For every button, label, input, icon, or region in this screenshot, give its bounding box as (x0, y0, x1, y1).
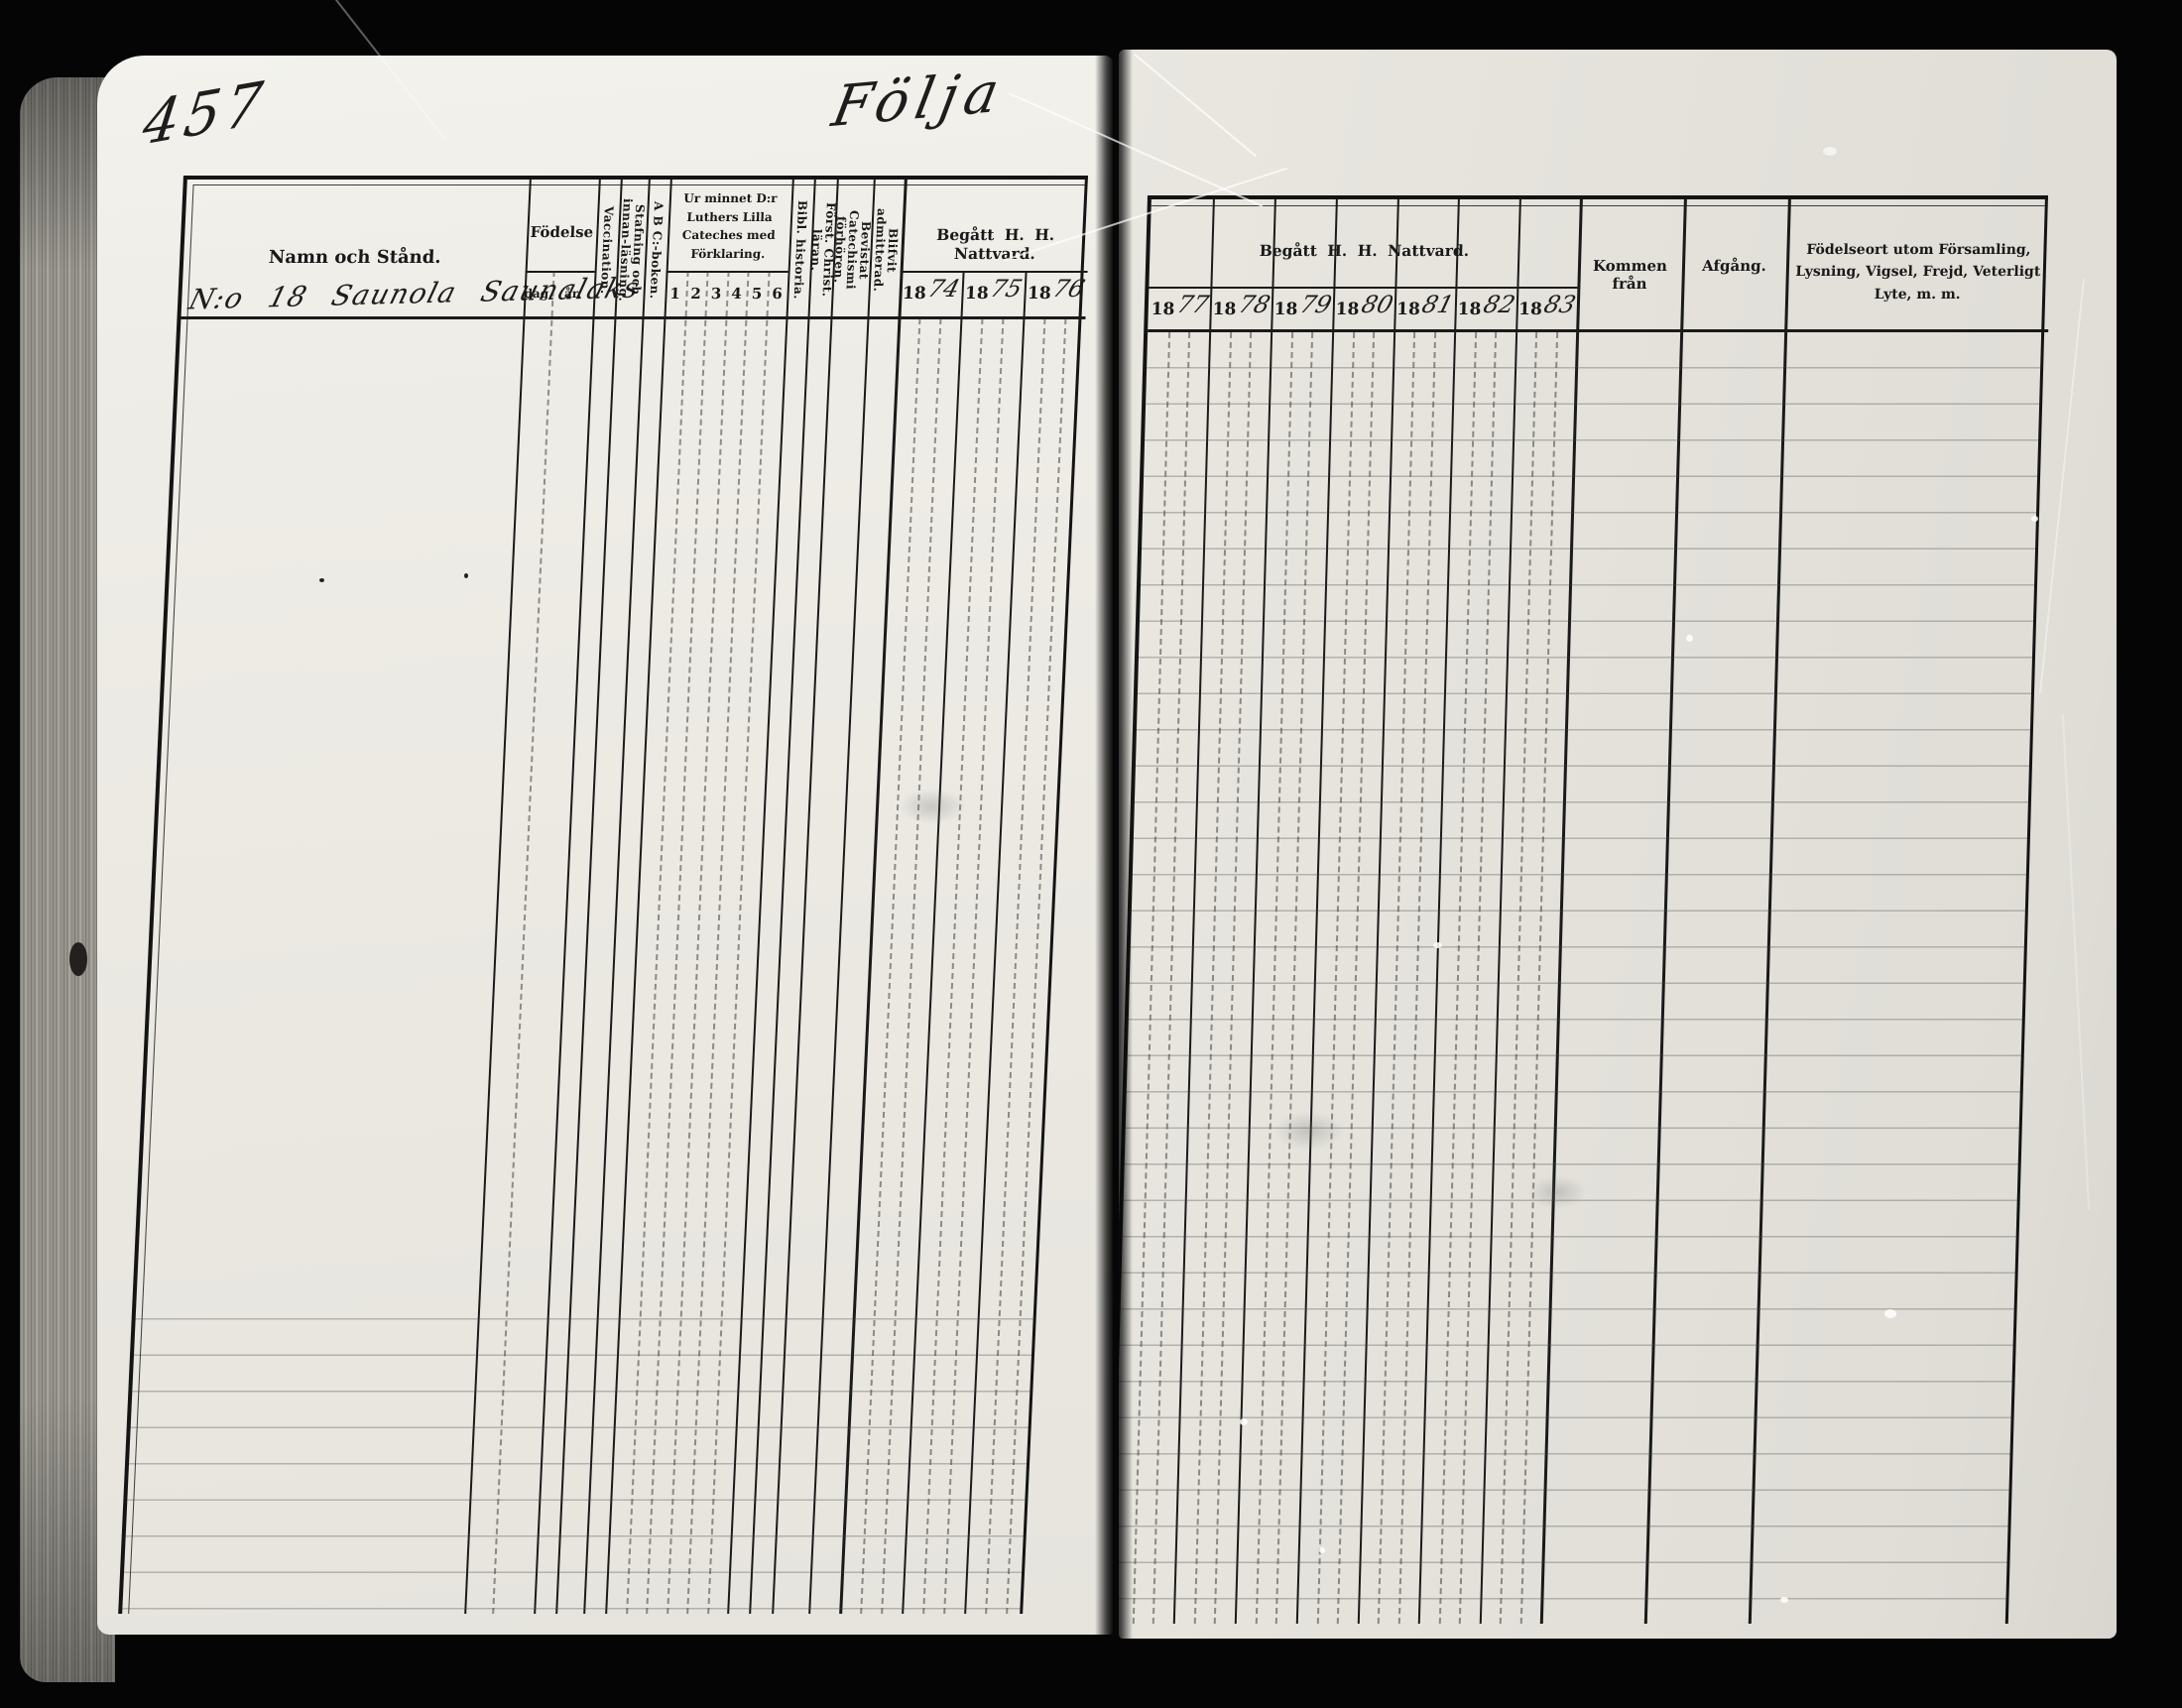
year-printed: 18 (1335, 300, 1359, 319)
right-table: Begått H. H. Nattvard. 1877 1878 1879 18… (1119, 195, 2048, 1624)
catechism-col-5: 5 (746, 285, 768, 303)
left-table: Namn och Stånd. N:o 18 Saunola Saunalaks… (118, 176, 1088, 1614)
left-page: 457 Följa Namn och Stånd. N:o 18 Saunola… (97, 56, 1113, 1635)
paper-speck (1319, 1547, 1325, 1553)
col-header-communion-right: Begått H. H. Nattvard. (1150, 241, 1579, 260)
abc-book-label: A B C:-boken. (648, 201, 665, 300)
year-handwritten: 75 (987, 275, 1025, 303)
year-handwritten: 81 (1419, 291, 1457, 318)
ink-dot (464, 573, 468, 578)
year-column-1880: 1880 (1332, 293, 1394, 320)
col-header-communion-left: Begått H. H. Nattvard. (901, 225, 1090, 263)
catechism-col-3: 3 (705, 285, 727, 303)
ink-blot (69, 942, 87, 976)
year-column-1879: 1879 (1271, 293, 1333, 320)
paper-speck (1686, 635, 1693, 642)
year-column-1883: 1883 (1515, 293, 1577, 320)
paper-speck (1780, 1597, 1788, 1603)
bible-history-label: Bibl. historia. (791, 200, 808, 300)
year-printed: 18 (965, 284, 990, 304)
year-printed: 18 (1396, 300, 1420, 319)
year-printed: 18 (1028, 284, 1052, 304)
year-handwritten: 82 (1480, 291, 1517, 318)
header-bottom-rule (181, 316, 1085, 319)
year-handwritten: 79 (1296, 291, 1334, 318)
year-column-1876: 1876 (1024, 277, 1087, 305)
year-printed: 18 (1212, 300, 1236, 319)
year-printed: 18 (1457, 300, 1481, 319)
ruled-lines (1119, 332, 2041, 1624)
year-handwritten: 77 (1173, 291, 1211, 318)
catechism-col-1: 1 (665, 285, 685, 303)
col-header-name-status: Namn och Stånd. (183, 247, 527, 268)
admitted-label: Blifvit admitterad. (871, 185, 902, 314)
book-gutter-shadow (1095, 50, 1133, 1641)
paper-speck (1823, 147, 1837, 156)
header-rule (1149, 287, 1577, 289)
ruled-lines (122, 1283, 1034, 1614)
col-header-birthplace-notes: Födelseort utom Församling, Lysning, Vig… (1791, 239, 2045, 305)
year-handwritten: 76 (1049, 275, 1087, 303)
catechism-col-6: 6 (767, 285, 788, 303)
year-printed: 18 (1518, 300, 1542, 319)
paper-speck (2031, 516, 2038, 522)
vaccination-label: Vaccination. (598, 206, 615, 295)
col-header-catechism-memory: Ur minnet D:r Luthers Lilla Cateches med… (668, 189, 789, 263)
catechism-col-4: 4 (726, 285, 747, 303)
catechism-col-2: 2 (685, 285, 706, 303)
year-printed: 18 (1151, 300, 1174, 319)
year-column-1881: 1881 (1394, 293, 1455, 320)
col-header-birth-year: år. (551, 287, 594, 301)
year-handwritten: 78 (1235, 291, 1273, 318)
smudge-mark (898, 789, 967, 824)
header-rule (526, 271, 595, 273)
col-header-departure: Afgång. (1682, 257, 1787, 275)
year-handwritten: 74 (924, 275, 962, 303)
paper-speck (1433, 942, 1442, 948)
handwritten-page-title: Följa (827, 60, 1011, 140)
paper-speck (1240, 1418, 1248, 1425)
year-column-1882: 1882 (1454, 293, 1516, 320)
header-rule (901, 271, 1088, 273)
smudge-mark (1274, 1111, 1344, 1151)
handwritten-page-number: 457 (139, 67, 272, 160)
col-header-came-from: Kommen från (1577, 257, 1682, 293)
col-header-birth: Födelse (527, 223, 597, 241)
year-handwritten: 83 (1541, 291, 1579, 318)
paper-speck (1884, 1309, 1896, 1318)
col-header-birth-day: dag. (524, 287, 552, 301)
smudge-mark (1527, 1175, 1587, 1209)
inner-border-line (1152, 205, 2045, 206)
ink-dot (319, 578, 324, 582)
year-printed: 18 (903, 284, 927, 304)
year-column-1877: 1877 (1148, 293, 1210, 320)
year-column-1874: 1874 (899, 277, 962, 305)
year-column-1875: 1875 (961, 277, 1025, 305)
church-book-scan: 457 Följa Namn och Stånd. N:o 18 Saunola… (0, 0, 2182, 1708)
year-column-1878: 1878 (1209, 293, 1272, 320)
year-printed: 18 (1273, 300, 1297, 319)
right-page: Begått H. H. Nattvard. 1877 1878 1879 18… (1119, 50, 2117, 1639)
year-handwritten: 80 (1358, 291, 1395, 318)
